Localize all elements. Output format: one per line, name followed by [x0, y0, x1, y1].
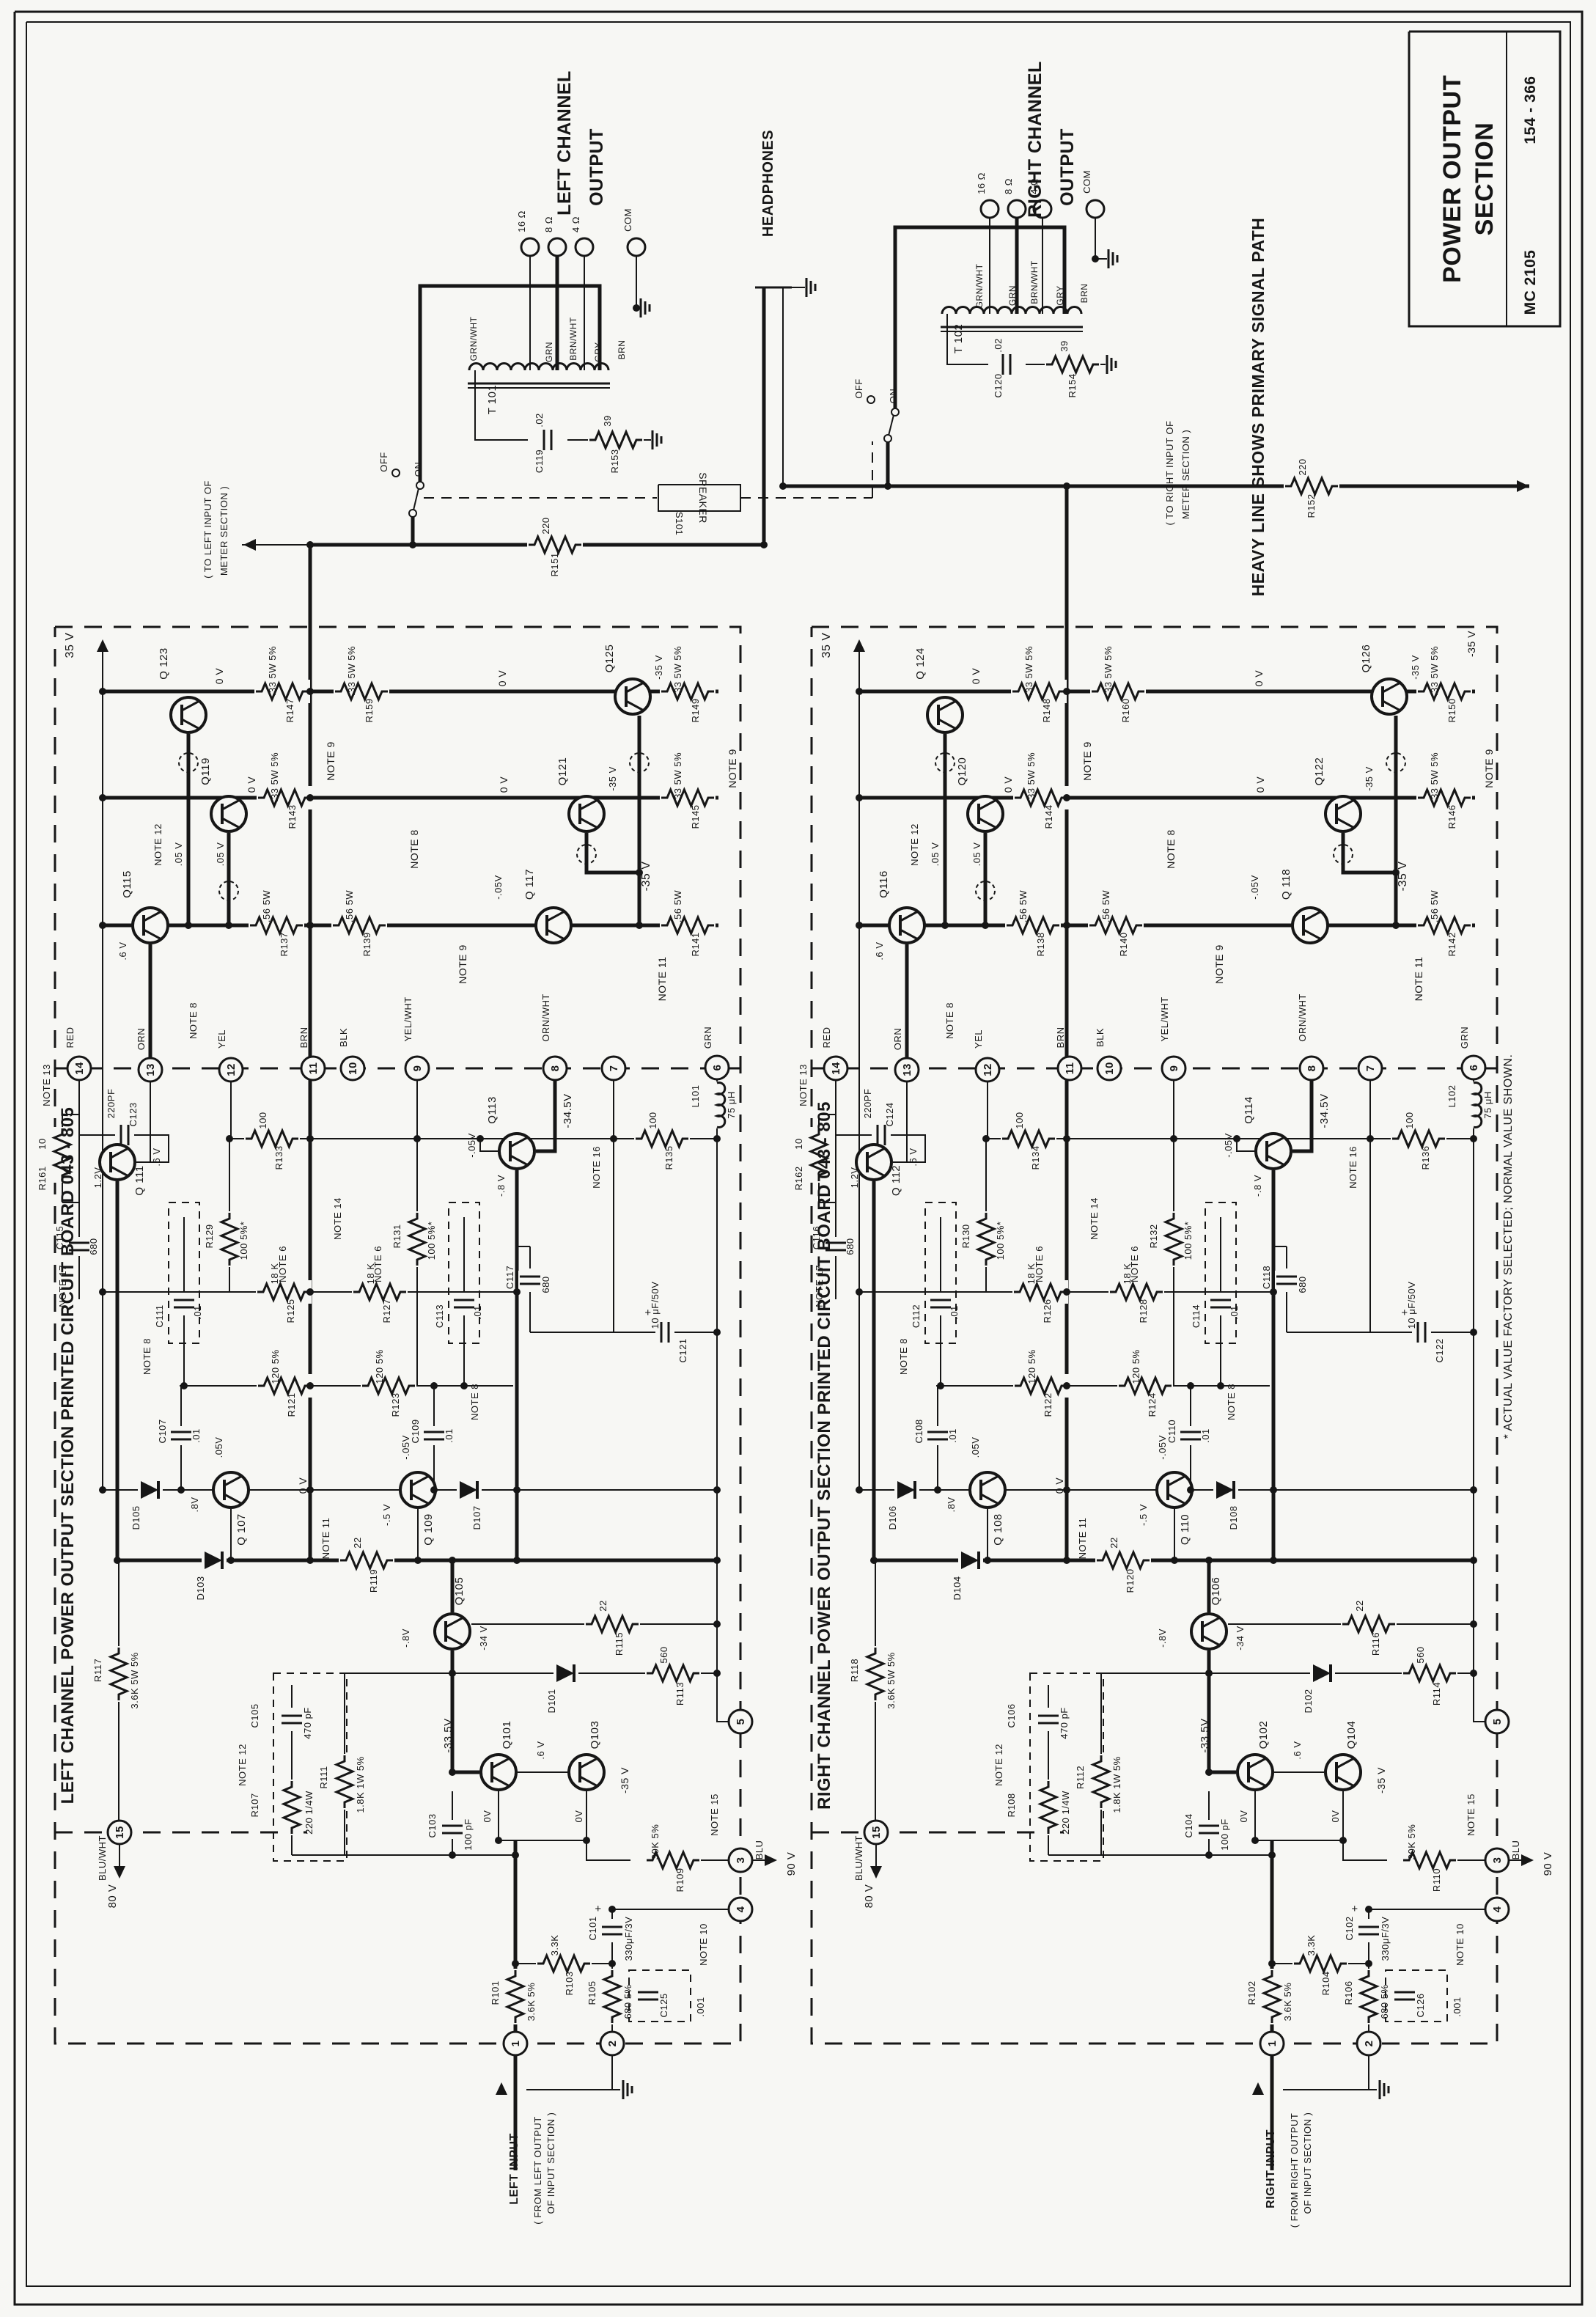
- tr-262-right: [1325, 1755, 1361, 1790]
- svg-text:NOTE 11: NOTE 11: [1077, 1518, 1088, 1560]
- svg-text:10 μF/50V: 10 μF/50V: [1406, 1282, 1417, 1329]
- tr-53-left: [133, 908, 168, 943]
- svg-text:-.8 V: -.8 V: [496, 1175, 507, 1197]
- t-256-right: 1.8K 1W 5%: [1111, 1756, 1122, 1813]
- svg-text:( FROM LEFT OUTPUT: ( FROM LEFT OUTPUT: [532, 2116, 543, 2224]
- svg-text:NOTE 14: NOTE 14: [1089, 1197, 1100, 1240]
- title-line1: POWER OUTPUT: [1438, 75, 1466, 283]
- svg-text:8: 8: [1306, 1065, 1318, 1072]
- t-37-left: .56 5W: [344, 890, 355, 922]
- C120: [997, 353, 1016, 376]
- t-241-right: -33.5V: [1199, 1718, 1211, 1752]
- res-254-right: [1089, 1754, 1113, 1810]
- svg-text:C101: C101: [587, 1916, 598, 1940]
- t-326-left: ( FROM LEFT OUTPUT: [532, 2116, 543, 2224]
- t-288-right: 330μF/3V: [1380, 1917, 1391, 1961]
- svg-text:12: 12: [225, 1063, 238, 1076]
- svg-text:12: 12: [982, 1063, 994, 1076]
- speaker-switch-label: SPEAKER: [697, 472, 709, 524]
- t-185-left: R123: [390, 1392, 401, 1417]
- headphones-label: HEADPHONES: [760, 130, 776, 237]
- t-26-right: R150: [1446, 698, 1457, 722]
- arr-321-left: [496, 2082, 507, 2095]
- svg-text:9: 9: [1168, 1065, 1180, 1072]
- cap-187-right: [926, 1426, 949, 1445]
- t-206-left: Q 109: [422, 1513, 435, 1545]
- svg-text:C105: C105: [249, 1703, 260, 1727]
- ind-176-right: [1466, 1082, 1482, 1128]
- svg-text:Q104: Q104: [1345, 1721, 1358, 1749]
- svg-text:Q 111: Q 111: [133, 1165, 146, 1195]
- res-231-left: [584, 1612, 640, 1636]
- dot-357-right: [1470, 1670, 1477, 1677]
- svg-text:NOTE 12: NOTE 12: [909, 823, 920, 866]
- t-86-left: YEL/WHT: [402, 996, 413, 1041]
- tr-262-left: [569, 1755, 604, 1790]
- svg-text:HEAVY LINE SHOWS PRIMARY SIGNA: HEAVY LINE SHOWS PRIMARY SIGNAL PATH: [1249, 218, 1268, 597]
- svg-text:Q121: Q121: [556, 757, 569, 786]
- svg-text:NOTE 16: NOTE 16: [591, 1146, 602, 1189]
- t-167-left: 680: [540, 1276, 551, 1293]
- cap-286-right: [1357, 1921, 1380, 1940]
- svg-text:.33 5W 5%: .33 5W 5%: [269, 752, 280, 802]
- svg-text:BRN: BRN: [617, 340, 627, 360]
- terminal-11-left: 11: [301, 1057, 325, 1080]
- res-18-left: [254, 680, 310, 703]
- svg-text:220PF: 220PF: [862, 1089, 873, 1119]
- gnd-41: [652, 430, 661, 449]
- t-200-right: D108: [1228, 1505, 1239, 1530]
- svg-text:C110: C110: [1166, 1420, 1177, 1443]
- svg-text:NOTE 15: NOTE 15: [1466, 1793, 1477, 1836]
- t-54-right: Q116: [878, 870, 890, 898]
- dot-336-right: [856, 688, 863, 695]
- cap-270-left: [441, 1820, 464, 1839]
- t-158-left: -.05V: [466, 1133, 477, 1158]
- t-239-right: R114: [1431, 1682, 1442, 1705]
- title-model: MC 2105: [1522, 250, 1539, 315]
- res-39-right: [1416, 914, 1472, 937]
- tr-156-right: [1256, 1134, 1291, 1169]
- svg-text:Q 124: Q 124: [914, 647, 927, 679]
- svg-text:NOTE 13: NOTE 13: [798, 1064, 809, 1106]
- svg-text:100: 100: [1404, 1112, 1415, 1128]
- dot-125: [409, 541, 416, 548]
- dot-336-left: [99, 688, 106, 695]
- svg-text:C116: C116: [811, 1226, 822, 1249]
- t-84-right: BLK: [1095, 1028, 1106, 1047]
- svg-text:R151: R151: [549, 552, 560, 576]
- dio-197-right: [894, 1479, 919, 1501]
- t-303-left: C125: [658, 1993, 669, 2017]
- svg-text:7: 7: [608, 1065, 620, 1072]
- t-250-right: R108: [1006, 1793, 1017, 1817]
- left-com-ground: [641, 298, 650, 317]
- dot-339-right: [856, 1288, 863, 1296]
- svg-text:GRN: GRN: [544, 342, 554, 362]
- dot-332-left: [306, 1288, 314, 1296]
- t-195-right: NOTE 8: [1226, 1384, 1237, 1420]
- svg-text:R154: R154: [1067, 373, 1078, 397]
- t-281-right: R110: [1431, 1868, 1442, 1892]
- t-319-right: 90 V: [1542, 1852, 1554, 1876]
- svg-text:2: 2: [1363, 2041, 1375, 2047]
- svg-text:680 5%: 680 5%: [622, 1984, 633, 2019]
- svg-text:BRN/WHT: BRN/WHT: [1029, 260, 1040, 304]
- svg-text:0 V: 0 V: [1002, 776, 1014, 793]
- svg-text:3: 3: [735, 1857, 747, 1864]
- t-113-left: C115: [54, 1226, 65, 1249]
- res-249-right: [1037, 1780, 1060, 1835]
- circ-106: [867, 396, 875, 403]
- svg-text:COM: COM: [622, 208, 633, 232]
- t-233-right: R116: [1370, 1632, 1381, 1656]
- svg-text:R120: R120: [1125, 1568, 1136, 1593]
- t-157-right: Q114: [1243, 1096, 1255, 1124]
- terminal-14-left: 14: [67, 1057, 91, 1080]
- terminal-3-left: 3: [729, 1848, 752, 1872]
- t-251-right: 220 1/4W: [1060, 1791, 1071, 1835]
- t-123-right: R136: [1420, 1145, 1431, 1169]
- svg-text:NOTE 9: NOTE 9: [325, 741, 337, 781]
- svg-text:C126: C126: [1415, 1993, 1426, 2017]
- t-107-right: Q 112: [890, 1165, 902, 1196]
- t-51-left: .05 V: [215, 842, 226, 867]
- svg-text:BLU/WHT: BLU/WHT: [853, 1835, 864, 1881]
- res-118-left: [244, 1127, 300, 1150]
- svg-text:4: 4: [1491, 1906, 1504, 1912]
- dot-359-left: [449, 1769, 456, 1776]
- svg-text:NOTE 8: NOTE 8: [408, 829, 420, 869]
- svg-text:Q120: Q120: [956, 757, 968, 786]
- svg-text:D101: D101: [546, 1689, 557, 1713]
- t-55-right: .6 V: [874, 941, 885, 960]
- svg-text:SECTION: SECTION: [1471, 122, 1498, 236]
- t-82-left: BRN: [298, 1027, 309, 1049]
- t-105-right: C124: [884, 1102, 895, 1126]
- svg-text:C112: C112: [911, 1304, 922, 1328]
- t-155-right: R128: [1138, 1299, 1149, 1323]
- svg-text:R150: R150: [1446, 698, 1457, 722]
- R153: [588, 428, 644, 452]
- switch-on-label-left: ON: [413, 462, 424, 477]
- dot-359-right: [1205, 1769, 1213, 1776]
- dot-367-left: [114, 1557, 121, 1564]
- t-296-left: 3.3K: [549, 1935, 560, 1956]
- t-147-right: C114: [1191, 1304, 1202, 1328]
- t-304-right: .001: [1452, 1997, 1463, 2016]
- t-190-left: NOTE 8: [141, 1338, 152, 1375]
- t-172-right: 10 μF/50V: [1406, 1282, 1417, 1329]
- t-282-left: NOTE 15: [709, 1793, 720, 1836]
- t-52-left: NOTE 12: [152, 823, 163, 866]
- svg-text:10: 10: [1103, 1062, 1116, 1075]
- t-57-left: Q125: [603, 645, 616, 673]
- dot-338-left: [99, 922, 106, 929]
- svg-text:GRN/WHT: GRN/WHT: [468, 316, 479, 361]
- t-73: 8 Ω: [1003, 178, 1014, 194]
- svg-text:R146: R146: [1446, 804, 1457, 829]
- arr-321-right: [1252, 2082, 1264, 2095]
- res-298-right: [1260, 1969, 1284, 2024]
- cap-165-left: [518, 1271, 542, 1290]
- svg-text:D105: D105: [130, 1505, 141, 1530]
- res-30-right: [1416, 786, 1472, 809]
- svg-text:NOTE 10: NOTE 10: [698, 1923, 709, 1966]
- svg-text:R143: R143: [287, 804, 298, 829]
- dio-235-left: [554, 1662, 578, 1684]
- svg-text:11: 11: [307, 1062, 320, 1075]
- tr-106-right: [856, 1145, 891, 1180]
- svg-text:OUTPUT: OUTPUT: [586, 128, 607, 206]
- svg-text:Q122: Q122: [1313, 757, 1325, 786]
- t-318-right: BLU: [1510, 1840, 1521, 1860]
- svg-text:RIGHT CHANNEL POWER OUTPUT SEC: RIGHT CHANNEL POWER OUTPUT SECTION PRINT…: [814, 1101, 834, 1810]
- t-73-right: NOTE 8: [1165, 829, 1177, 869]
- t-194-right: .01: [1200, 1428, 1211, 1443]
- svg-text:680: 680: [1297, 1276, 1308, 1293]
- dot-328-right: [1063, 688, 1070, 695]
- t-84-left: BLK: [338, 1028, 349, 1047]
- t-104-right: 220PF: [862, 1089, 873, 1119]
- t-113-right: C116: [811, 1226, 822, 1249]
- svg-text:OFF: OFF: [853, 378, 864, 399]
- t-159-left: -.8 V: [496, 1175, 507, 1197]
- dot-365-right: [1251, 1837, 1259, 1844]
- t-4-left: 35 V: [64, 633, 76, 658]
- svg-text:C108: C108: [913, 1419, 924, 1443]
- t-141-left: C111: [154, 1304, 165, 1327]
- terminal-4-left: 4: [729, 1898, 752, 1921]
- svg-text:GRY: GRY: [1055, 285, 1065, 305]
- t-91: GRY: [1055, 285, 1065, 305]
- t-58: 220: [540, 517, 551, 534]
- svg-text:R140: R140: [1118, 932, 1129, 956]
- dot-367-right: [870, 1557, 878, 1564]
- svg-text:.56 5W: .56 5W: [1018, 890, 1029, 922]
- transformer-T101-label: T 101: [486, 385, 499, 415]
- t-38: 39: [602, 415, 613, 426]
- cap-187-left: [169, 1426, 193, 1445]
- t-20-left: R147: [284, 698, 295, 722]
- svg-text:R159: R159: [364, 698, 375, 722]
- t-251-left: 220 1/4W: [304, 1791, 315, 1835]
- svg-text:D106: D106: [887, 1505, 898, 1530]
- t-69-left: 0 V: [498, 776, 510, 793]
- svg-text:R118: R118: [849, 1659, 860, 1682]
- svg-text:NOTE 17: NOTE 17: [814, 1265, 825, 1307]
- res-27-left: [257, 786, 312, 809]
- svg-text:R114: R114: [1431, 1682, 1442, 1705]
- svg-text:NOTE 12: NOTE 12: [993, 1744, 1004, 1786]
- t-126-left: R129: [204, 1224, 215, 1248]
- t-29: BRN/WHT: [568, 317, 578, 361]
- t-160-left: -34.5V: [562, 1093, 574, 1128]
- svg-text:NOTE 12: NOTE 12: [237, 1744, 248, 1786]
- svg-text:100 5%*: 100 5%*: [238, 1222, 249, 1260]
- svg-text:5: 5: [1491, 1719, 1504, 1725]
- svg-text:.56 5W: .56 5W: [344, 890, 355, 922]
- t-11: 16 Ω: [516, 210, 527, 232]
- svg-text:220: 220: [540, 517, 551, 534]
- dot-350-left: [413, 1135, 421, 1142]
- t-177-left: L101: [690, 1085, 701, 1108]
- left-terminal-4-ohm: [575, 238, 593, 256]
- dot-339-left: [99, 1288, 106, 1296]
- t-280-right: 30K 5%: [1406, 1824, 1417, 1860]
- svg-text:POWER OUTPUT: POWER OUTPUT: [1438, 75, 1466, 283]
- t-246-left: 470 pF: [302, 1707, 313, 1738]
- t-126-right: R130: [960, 1224, 971, 1248]
- svg-text:NOTE 8: NOTE 8: [469, 1384, 480, 1420]
- svg-text:( TO LEFT INPUT OF: ( TO LEFT INPUT OF: [202, 480, 213, 579]
- t-188-left: C107: [157, 1419, 168, 1443]
- svg-text:C120: C120: [993, 373, 1004, 397]
- svg-text:R161: R161: [37, 1166, 48, 1190]
- svg-text:R130: R130: [960, 1224, 971, 1248]
- svg-text:-33.5V: -33.5V: [442, 1718, 455, 1752]
- svg-text:-.8V: -.8V: [400, 1628, 411, 1648]
- svg-text:C117: C117: [504, 1266, 515, 1289]
- svg-text:BRN: BRN: [1055, 1027, 1066, 1049]
- t-141-right: C112: [911, 1304, 922, 1328]
- svg-text:C106: C106: [1006, 1703, 1017, 1727]
- t-68-left: 0 V: [496, 670, 508, 687]
- svg-text:R111: R111: [318, 1766, 329, 1788]
- t-222-right: 3.6K 5W 5%: [886, 1652, 897, 1708]
- svg-text:C102: C102: [1344, 1916, 1355, 1940]
- dot-342-right: [982, 922, 989, 929]
- svg-text:NOTE 13: NOTE 13: [41, 1064, 52, 1106]
- headphone-ground: [806, 278, 815, 297]
- arr-317-left: [765, 1854, 777, 1866]
- svg-text:COM: COM: [1081, 170, 1092, 194]
- svg-text:100 5%*: 100 5%*: [995, 1222, 1006, 1260]
- res-291-left: [600, 1969, 624, 2024]
- svg-text:80 V: 80 V: [863, 1884, 875, 1909]
- t-158-right: -.05V: [1223, 1133, 1234, 1158]
- dot-331-right: [1063, 1135, 1070, 1142]
- svg-text:C109: C109: [410, 1419, 421, 1443]
- svg-text:.56 5W: .56 5W: [1100, 890, 1111, 922]
- svg-text:1: 1: [1266, 2041, 1279, 2047]
- svg-text:-35 V: -35 V: [653, 655, 664, 680]
- t-44-right: 0 V: [970, 668, 982, 685]
- t-76-right: RED: [821, 1027, 832, 1049]
- speaker-switch-ref: S101: [674, 512, 685, 535]
- dio-197-left: [138, 1479, 163, 1501]
- terminal-12-left: 12: [219, 1058, 243, 1082]
- t-100-left: 10: [37, 1138, 48, 1149]
- svg-text:1.8K 1W 5%: 1.8K 1W 5%: [355, 1756, 366, 1813]
- terminal-3-right: 3: [1485, 1848, 1509, 1872]
- t-246-right: 470 pF: [1059, 1707, 1070, 1738]
- dot-333-left: [306, 1382, 314, 1389]
- t-281-left: R109: [674, 1868, 685, 1892]
- dio-199-right: [1213, 1479, 1238, 1501]
- svg-text:Q102: Q102: [1257, 1721, 1270, 1749]
- dot-360-left: [449, 1851, 456, 1859]
- t-70-right: NOTE 9: [1081, 741, 1093, 781]
- svg-text:5: 5: [735, 1719, 747, 1725]
- t-245-right: C106: [1006, 1703, 1017, 1727]
- svg-text:.33 5W 5%: .33 5W 5%: [1429, 752, 1440, 802]
- svg-text:GRN: GRN: [1007, 285, 1018, 306]
- t-82-right: BRN: [1055, 1027, 1066, 1049]
- svg-text:22: 22: [1108, 1537, 1119, 1548]
- t-22-right: .33 5W 5%: [1103, 646, 1114, 696]
- w-17-right: [1292, 1078, 1312, 1151]
- svg-text:R142: R142: [1446, 932, 1457, 956]
- svg-text:D104: D104: [952, 1576, 963, 1600]
- tr-106-left: [100, 1145, 135, 1180]
- dot-349-right: [982, 1135, 990, 1142]
- svg-text:NOTE 9: NOTE 9: [457, 944, 468, 984]
- svg-text:BLK: BLK: [1095, 1028, 1106, 1047]
- t-34-right: .56 5W: [1018, 890, 1029, 922]
- t-35: C119: [534, 449, 545, 473]
- svg-text:R147: R147: [284, 698, 295, 722]
- svg-text:BRN: BRN: [298, 1027, 309, 1049]
- right-terminal-16-ohm: [981, 200, 999, 218]
- svg-text:3.6K 5%: 3.6K 5%: [1282, 1983, 1293, 2022]
- t-48-right: 0 V: [1002, 776, 1014, 793]
- svg-text:0 V: 0 V: [498, 776, 510, 793]
- t-204-left: .8V: [189, 1497, 200, 1512]
- t-152-right: R126: [1042, 1299, 1053, 1323]
- t-31-left: .33 5W 5%: [672, 752, 683, 802]
- t-115-left: NOTE 17: [57, 1265, 68, 1307]
- t-121: -35 V: [1466, 631, 1477, 657]
- t-133-left: 100 5%*: [426, 1222, 437, 1260]
- svg-text:C107: C107: [157, 1419, 168, 1443]
- svg-text:15: 15: [114, 1826, 126, 1839]
- t-200-left: D107: [471, 1505, 482, 1530]
- to-right-meter-1: ( TO RIGHT INPUT OF: [1164, 421, 1175, 526]
- svg-text:-34 V: -34 V: [1235, 1626, 1246, 1650]
- svg-text:220PF: 220PF: [106, 1089, 117, 1119]
- t-34: .02: [534, 413, 545, 427]
- svg-text:0 V: 0 V: [1253, 670, 1265, 687]
- t-23-left: R159: [364, 698, 375, 722]
- svg-text:( TO RIGHT INPUT OF: ( TO RIGHT INPUT OF: [1164, 421, 1175, 526]
- dot-129: [1063, 482, 1070, 490]
- svg-text:GRN/WHT: GRN/WHT: [974, 263, 985, 308]
- w-240-left: [717, 1560, 740, 1722]
- res-183-right: [1117, 1374, 1173, 1398]
- dot-368-left: [227, 1557, 235, 1564]
- svg-text:METER SECTION ): METER SECTION ): [218, 486, 229, 576]
- dot-375-left: [430, 1486, 438, 1494]
- svg-text:4: 4: [735, 1906, 747, 1912]
- dot-340-right: [856, 1486, 863, 1494]
- svg-text:Q 123: Q 123: [158, 647, 170, 679]
- t-207-left: -.05V: [400, 1435, 411, 1460]
- svg-text:9: 9: [411, 1065, 424, 1072]
- svg-text:.01: .01: [472, 1305, 483, 1320]
- res-153-right: [1108, 1280, 1164, 1304]
- svg-text:R132: R132: [1148, 1224, 1159, 1248]
- svg-text:39: 39: [602, 415, 613, 426]
- t-241-left: -33.5V: [442, 1718, 455, 1752]
- terminal-6-right: 6: [1462, 1056, 1485, 1079]
- res-121-right: [1391, 1127, 1446, 1150]
- t-313-right: 80 V: [863, 1884, 875, 1909]
- t-122-left: 100: [647, 1112, 658, 1128]
- t-17: COM: [622, 208, 633, 232]
- t-37-right: .56 5W: [1100, 890, 1111, 922]
- t-47-right: Q120: [956, 757, 968, 786]
